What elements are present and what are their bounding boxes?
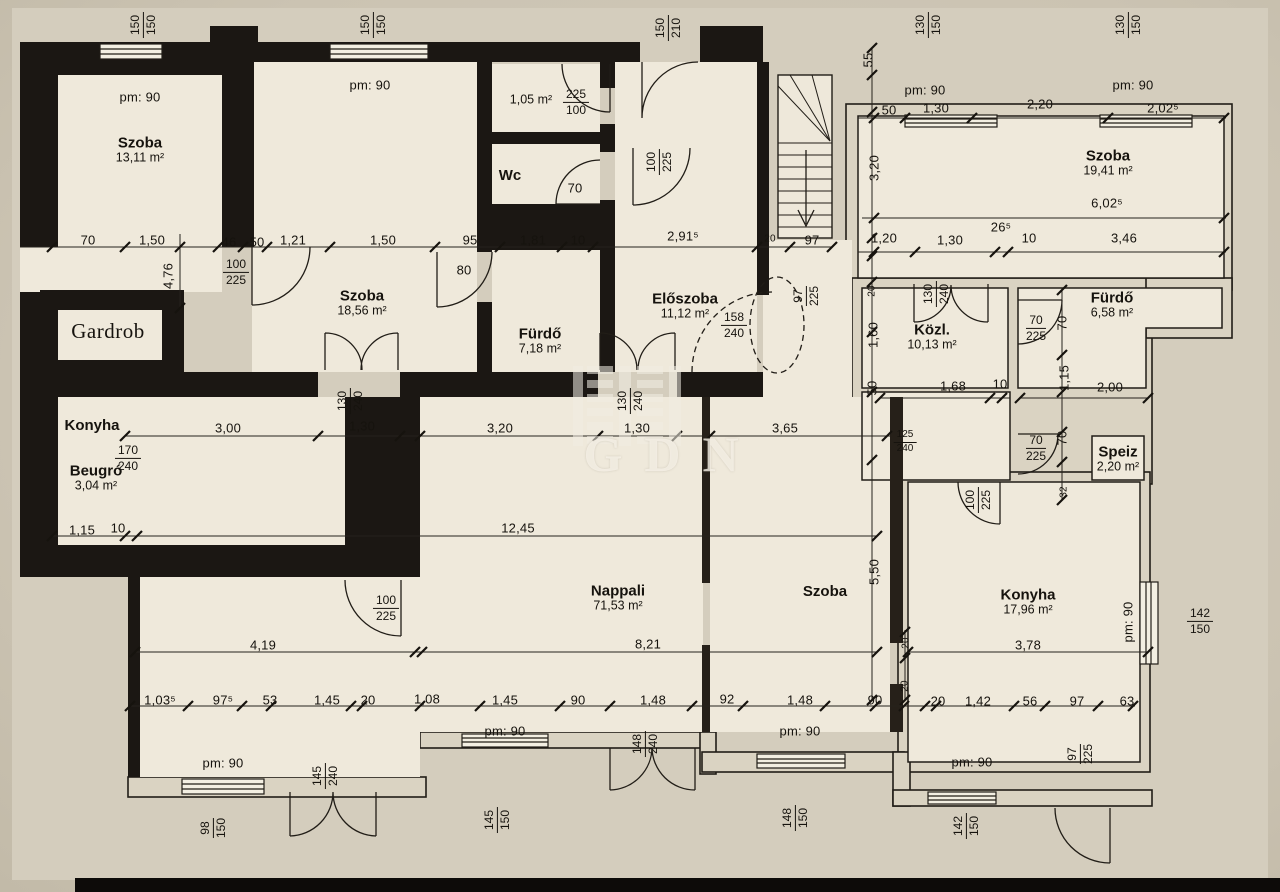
window: [182, 779, 264, 794]
opening-size-label: 100225: [373, 594, 399, 622]
dimension-label: 97: [1070, 694, 1085, 709]
room-label: Fürdő6,58 m²: [1091, 291, 1134, 320]
dimension-label: 4,76: [161, 263, 176, 289]
opening-size-label: 158240: [721, 311, 747, 339]
dimension-label: 20: [900, 680, 911, 692]
scan-edge-bar: [75, 878, 1280, 892]
opening-size-label: 150150: [129, 12, 157, 38]
dimension-label: 20: [361, 693, 376, 708]
dimension-label: 8,21: [635, 637, 661, 652]
dimension-label: 2,91⁵: [667, 229, 699, 244]
dimension-label: 50: [882, 103, 897, 118]
dimension-label: 1,30: [624, 421, 650, 436]
opening-size-label: 130240: [616, 388, 644, 414]
dimension-label: 20: [901, 637, 912, 649]
dimension-label: 1,60: [866, 322, 881, 348]
dimension-label: 95: [463, 233, 478, 248]
opening-size-label: 130240: [922, 281, 950, 307]
opening-size-label: 148240: [631, 731, 659, 757]
dimension-label: 2,20: [1027, 97, 1053, 112]
dimension-label: 90: [571, 693, 586, 708]
dimension-label: 10: [111, 521, 126, 536]
dimension-label: 1,21: [280, 233, 306, 248]
room-label: Speiz2,20 m²: [1097, 445, 1139, 474]
opening-size-label: 225100: [563, 88, 589, 116]
dimension-label: 10: [1022, 231, 1037, 246]
room-label: Gardrob: [71, 320, 144, 342]
dimension-label: 1,68: [940, 379, 966, 394]
opening-size-label: 100225: [223, 258, 249, 286]
dimension-label: 26⁵: [991, 220, 1011, 235]
window: [1100, 115, 1192, 127]
opening-size-label: 98150: [199, 818, 227, 838]
dimension-label: 55: [861, 53, 876, 68]
opening-size-label: 100225: [645, 149, 673, 175]
dimension-label: 70: [1055, 431, 1070, 446]
room-label: Előszoba11,12 m²: [652, 292, 718, 321]
dimension-label: 97: [805, 233, 820, 248]
dimension-label: 1,20: [871, 231, 897, 246]
room-label: Nappali71,53 m²: [591, 584, 645, 613]
room-label: 1,05 m²: [510, 93, 552, 106]
dimension-label: 97⁵: [213, 693, 233, 708]
room-label: Wc: [499, 168, 522, 184]
dimension-label: pm: 90: [485, 724, 526, 739]
dimension-label: 1,30: [923, 101, 949, 116]
dimension-label: 50: [865, 381, 880, 396]
opening-size-label: 97225: [792, 286, 820, 306]
dimension-label: 1,45: [492, 693, 518, 708]
opening-size-label: 100225: [964, 487, 992, 513]
opening-size-label: 170240: [115, 444, 141, 472]
dimension-label: 92: [720, 692, 735, 707]
dimension-label: 1,45: [314, 693, 340, 708]
room-label: Szoba13,11 m²: [116, 136, 164, 165]
staircase: [778, 75, 832, 238]
opening-size-label: 70225: [1026, 434, 1046, 462]
dimension-label: 50: [250, 235, 265, 250]
room-label: Konyha17,96 m²: [1000, 588, 1055, 617]
dimension-label: 3,20: [867, 155, 882, 181]
dimension-label: 80: [457, 263, 472, 278]
dimension-label: pm: 90: [952, 755, 993, 770]
room-label: Közl.10,13 m²: [907, 323, 956, 352]
opening-size-label: 145150: [483, 807, 511, 833]
dimension-label: 32: [1059, 486, 1070, 498]
dimension-label: 1,15: [1057, 365, 1072, 391]
room-label: Fürdő7,18 m²: [519, 327, 562, 356]
dimension-label: 1,15: [69, 523, 95, 538]
opening-size-label: 150210: [654, 15, 682, 41]
dimension-label: 5,50: [867, 559, 882, 585]
opening-size-label: 150150: [359, 12, 387, 38]
dimension-label: pm: 90: [120, 90, 161, 105]
opening-size-label: 130240: [336, 388, 364, 414]
dimension-label: 1,50: [370, 233, 396, 248]
dimension-label: 2,00: [1097, 380, 1123, 395]
dimension-label: 3,65: [772, 421, 798, 436]
dimension-label: 3,00: [215, 421, 241, 436]
dimension-label: 46: [222, 235, 237, 250]
room-label: Szoba18,56 m²: [337, 289, 386, 318]
opening-size-label: 130150: [1114, 12, 1142, 38]
dimension-label: 70: [568, 181, 583, 196]
dimension-label: 1,42: [965, 694, 991, 709]
dimension-label: 6,02⁵: [1091, 196, 1123, 211]
dimension-label: 1,48: [640, 693, 666, 708]
dimension-label: pm: 90: [350, 78, 391, 93]
window: [928, 792, 996, 804]
opening-size-label: 148150: [781, 805, 809, 831]
dimension-label: 90: [868, 693, 883, 708]
dimension-label: pm: 90: [1113, 78, 1154, 93]
room-label: Konyha: [64, 418, 119, 434]
window: [905, 115, 997, 127]
dimension-label: 70: [1055, 316, 1070, 331]
dimension-label: 2,02⁵: [1147, 101, 1179, 116]
dimension-label: pm: 90: [1121, 602, 1136, 643]
dimension-label: 12,45: [501, 521, 535, 536]
dimension-label: 70: [81, 233, 96, 248]
dimension-label: pm: 90: [905, 83, 946, 98]
dimension-label: 1,03⁵: [144, 693, 176, 708]
opening-size-label: 145240: [311, 763, 339, 789]
gdn-watermark: GDN: [562, 425, 782, 483]
opening-size-label: 142150: [1187, 607, 1213, 635]
dimension-label: 1,48: [787, 693, 813, 708]
dimension-label: 3,20: [487, 421, 513, 436]
dimension-label: 3,78: [1015, 638, 1041, 653]
dimension-label: 20: [764, 234, 776, 245]
dimension-label: 4,19: [250, 638, 276, 653]
window: [330, 44, 428, 59]
room-label: Szoba: [803, 584, 847, 600]
opening-size-label: 97225: [1066, 744, 1094, 764]
dimension-label: 10: [993, 377, 1008, 392]
opening-size-label: 70225: [1026, 314, 1046, 342]
dimension-label: 1,08: [414, 692, 440, 707]
dimension-label: 20: [931, 694, 946, 709]
dimension-label: pm: 90: [780, 724, 821, 739]
dimension-label: 1,50: [139, 233, 165, 248]
dimension-label: 53: [263, 693, 278, 708]
opening-size-label: 142150: [952, 813, 980, 839]
opening-size-label: 125240: [894, 430, 917, 454]
dimension-label: 1,30: [937, 233, 963, 248]
opening-size-label: 130150: [914, 12, 942, 38]
dimension-label: 20: [867, 285, 878, 297]
dimension-label: 1,30: [349, 419, 375, 434]
room-label: Szoba19,41 m²: [1083, 149, 1132, 178]
window: [100, 44, 162, 59]
dimension-label: pm: 90: [203, 756, 244, 771]
dimension-label: 3,46: [1111, 231, 1137, 246]
dimension-label: 56: [1023, 694, 1038, 709]
dimension-label: 1,81: [520, 233, 546, 248]
window: [757, 754, 845, 768]
dimension-label: 10: [571, 233, 586, 248]
floor-plan: GDN Szoba13,11 m²1,05 m²WcSzoba18,56 m²F…: [0, 0, 1280, 892]
dimension-label: 63: [1120, 694, 1135, 709]
